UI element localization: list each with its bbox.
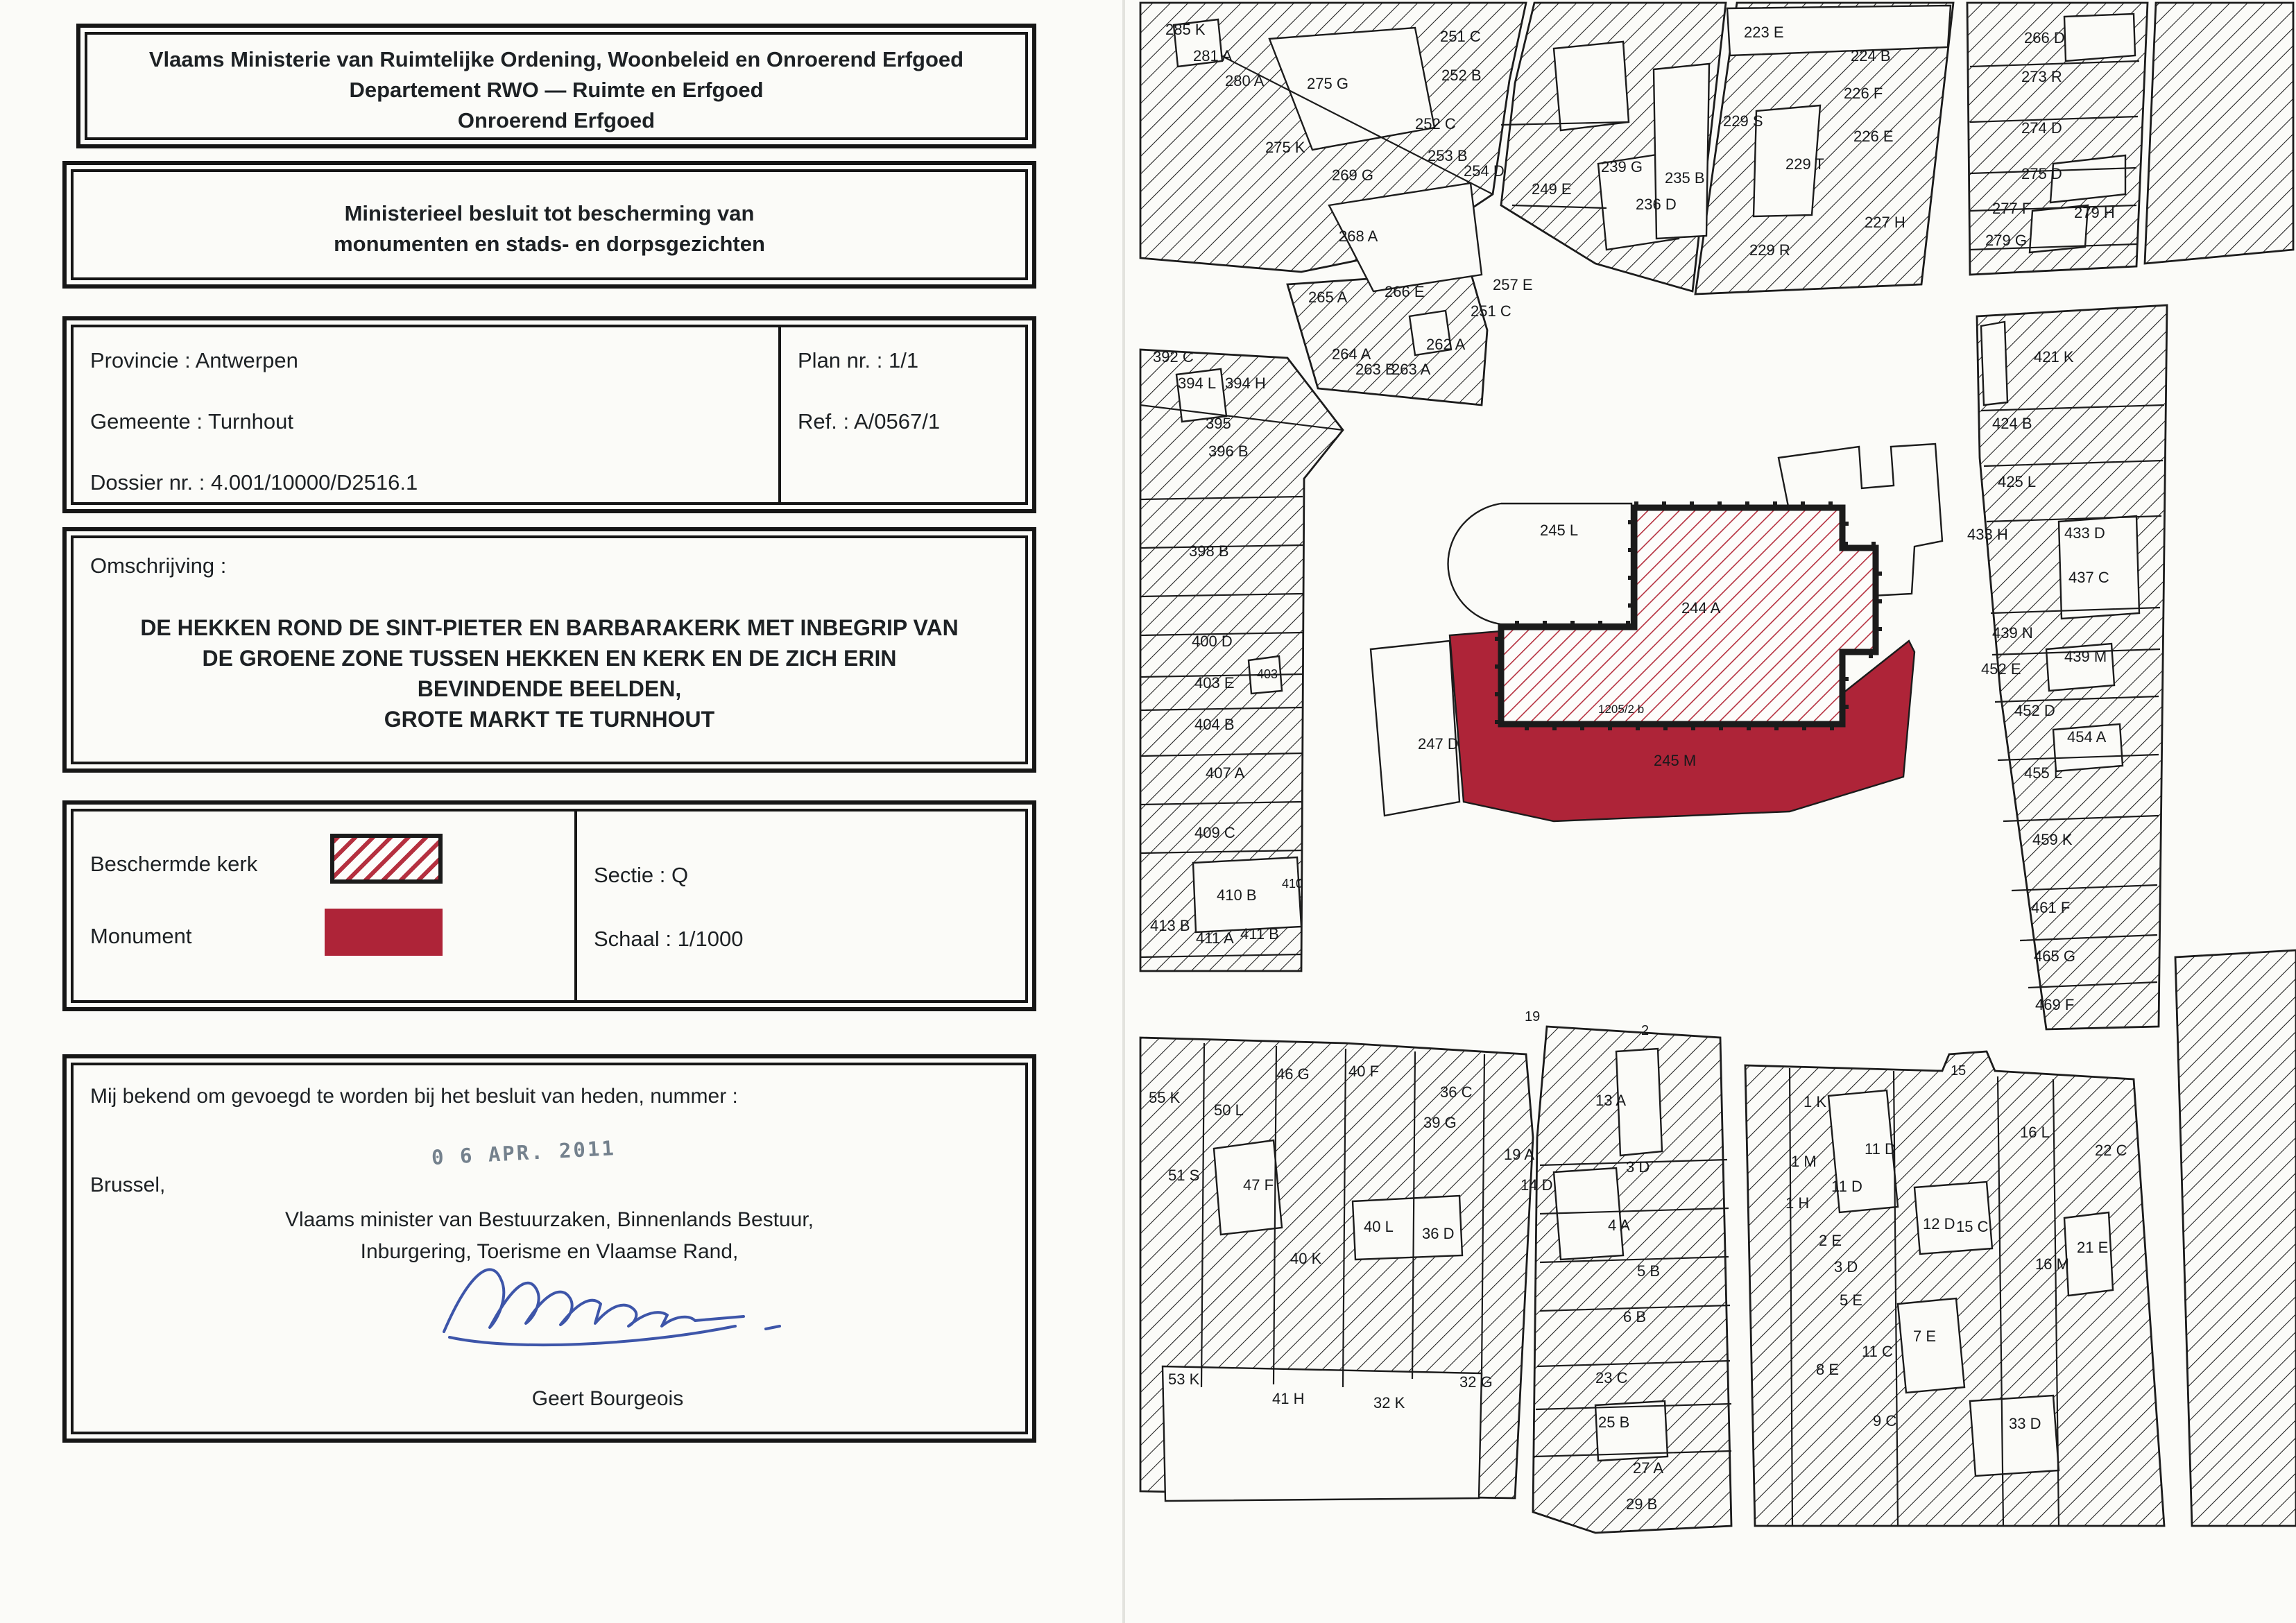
parcel-label: 46 G <box>1276 1065 1310 1083</box>
parcel-label: 247 D <box>1418 735 1459 753</box>
parcel-label: 252 B <box>1441 67 1482 84</box>
parcel-label: 229 R <box>1749 241 1790 259</box>
legend-box: Beschermde kerk Monument Sectie : Q Scha… <box>62 800 1036 1011</box>
parcel-label: 239 G <box>1601 158 1643 175</box>
parcel-label: 32 G <box>1459 1373 1493 1391</box>
parcel-label: 23 C <box>1595 1369 1628 1386</box>
parcel-label: 251 C <box>1440 28 1481 45</box>
parcel-label: 469 F <box>2035 996 2074 1013</box>
parcel-label: 33 D <box>2009 1415 2041 1432</box>
omschrijving-line1: DE HEKKEN ROND DE SINT-PIETER EN BARBARA… <box>74 615 1025 645</box>
parcel-label: 410 B <box>1217 886 1257 904</box>
closing-line: Mij bekend om gevoegd te worden bij het … <box>90 1085 738 1108</box>
parcel-label: 12 D <box>1923 1215 1955 1233</box>
info-divider <box>778 327 781 502</box>
parcel-label: 249 E <box>1532 180 1572 198</box>
parcel-label: 279 H <box>2074 204 2115 221</box>
plan-nr-field: Plan nr. : 1/1 <box>798 350 918 375</box>
parcel-label: 269 G <box>1332 166 1373 184</box>
dossier-field: Dossier nr. : 4.001/10000/D2516.1 <box>90 472 418 497</box>
parcel-label: 394 L <box>1178 375 1216 392</box>
parcel-247D <box>1371 641 1459 816</box>
parcel-label: 407 A <box>1206 764 1245 782</box>
parcel-label: 266 D <box>2024 29 2065 46</box>
legend-divider <box>574 811 577 1000</box>
parcel-label: 455 L <box>2024 764 2062 782</box>
closing-box: Mij bekend om gevoegd te worden bij het … <box>62 1054 1036 1443</box>
parcel-label: 409 C <box>1194 824 1235 841</box>
parcel-label: 454 A <box>2067 728 2107 746</box>
parcel-label: 439 N <box>1992 624 2033 642</box>
parcel-label: 433 D <box>2064 524 2105 542</box>
parcel-label: 275 K <box>1265 139 1305 156</box>
cadastral-map: 285 K281 A280 A275 G275 K269 G268 A265 A… <box>1138 0 2296 1623</box>
parcel-label: 3 D <box>1834 1258 1858 1276</box>
parcel-label: 452 E <box>1981 660 2021 678</box>
parcel-label: 6 B <box>1623 1308 1646 1325</box>
scanned-decree-page: Vlaams Ministerie van Ruimtelijke Ordeni… <box>0 0 2296 1623</box>
dossier-info-box: Provincie : Antwerpen Gemeente : Turnhou… <box>62 316 1036 513</box>
parcel-label: 266 E <box>1385 283 1425 300</box>
parcel-label: 425 L <box>1998 473 2036 490</box>
omschrijving-line2: DE GROENE ZONE TUSSEN HEKKEN EN KERK EN … <box>74 645 1025 676</box>
parcel-label: 265 A <box>1308 289 1348 306</box>
legend-label-kerk: Beschermde kerk <box>90 853 257 878</box>
parcel-label: 16 M <box>2035 1255 2069 1273</box>
parcel-label: 41 H <box>1272 1390 1304 1407</box>
parcel-label: 19 <box>1525 1009 1540 1024</box>
parcel-label: 14 D <box>1520 1176 1552 1194</box>
grote-markt-group <box>1371 504 1914 821</box>
parcel-label: 1 H <box>1785 1194 1809 1212</box>
parcel-label: 439 M <box>2064 648 2107 665</box>
legend-swatch-monument <box>325 909 443 956</box>
parcel-label: 245 L <box>1540 522 1578 539</box>
sectie-field: Sectie : Q <box>594 864 688 889</box>
parcel-label: 7 E <box>1913 1328 1936 1345</box>
parcel-label: 263 A <box>1391 361 1431 378</box>
parcel-label: 2 E <box>1819 1232 1842 1249</box>
parcel-label: 9 C <box>1873 1412 1896 1429</box>
agency-name: Onroerend Erfgoed <box>87 107 1025 137</box>
parcel-label: 11 C <box>1862 1343 1893 1360</box>
parcel-label: 275 G <box>1307 75 1348 92</box>
parcel-label: 281 A <box>1193 47 1233 65</box>
parcel-label: 16 L <box>2020 1124 2050 1141</box>
parcel-label: 394 H <box>1225 375 1266 392</box>
parcel-label: 53 K <box>1168 1371 1200 1388</box>
parcel-label: 257 E <box>1493 276 1533 293</box>
parcel-label: 3 D <box>1626 1158 1650 1176</box>
parcel-label: 452 D <box>2014 702 2055 719</box>
parcel-label: 235 B <box>1665 169 1705 187</box>
parcel-label: 27 A <box>1633 1459 1663 1477</box>
parcel-label: 465 G <box>2034 947 2075 965</box>
parcel-label: 396 B <box>1208 443 1249 460</box>
parcel-label: 40 K <box>1290 1250 1322 1267</box>
schaal-field: Schaal : 1/1000 <box>594 928 743 953</box>
parcel-label: 11 D <box>1865 1140 1896 1158</box>
parcel-label: 50 L <box>1214 1101 1244 1119</box>
legend-label-monument: Monument <box>90 925 191 950</box>
parcel-label: 226 F <box>1844 85 1883 102</box>
parcel-label: 421 K <box>2034 348 2074 366</box>
parcel-label: 274 D <box>2021 119 2062 137</box>
department-name: Departement RWO — Ruimte en Erfgoed <box>87 76 1025 107</box>
parcel-label: 411 B <box>1240 925 1279 943</box>
signer-name: Geert Bourgeois <box>420 1387 795 1411</box>
parcel-label: 40 F <box>1348 1063 1379 1080</box>
parcel-label: 11 D <box>1831 1178 1862 1195</box>
ministry-name: Vlaams Ministerie van Ruimtelijke Ordeni… <box>87 46 1025 76</box>
parcel-label: 424 B <box>1992 415 2032 432</box>
parcel-label: 229 S <box>1723 112 1763 130</box>
parcel-label: 275 D <box>2021 165 2062 182</box>
parcel-label: 32 K <box>1373 1394 1405 1411</box>
parcel-label: 1205/2 b <box>1598 703 1644 716</box>
parcel-label: 1 M <box>1791 1153 1817 1170</box>
omschrijving-line4: GROTE MARKT TE TURNHOUT <box>74 706 1025 737</box>
parcel-label: 229 T <box>1785 155 1824 173</box>
legend-swatch-beschermde-kerk <box>330 834 443 884</box>
parcel-label: 398 B <box>1189 542 1229 560</box>
parcel-label: 8 E <box>1816 1361 1839 1378</box>
parcel-label: 413 B <box>1150 917 1190 934</box>
parcel-label: 15 <box>1951 1063 1966 1079</box>
parcel-label: 403 <box>1257 667 1278 681</box>
minister-title-line1: Vlaams minister van Bestuurzaken, Binnen… <box>74 1204 1025 1236</box>
parcel-label: 1 K <box>1804 1093 1826 1110</box>
parcel-label: 47 F <box>1243 1176 1274 1194</box>
parcel-label: 285 K <box>1165 21 1206 38</box>
parcel-label: 437 C <box>2068 569 2109 586</box>
parcel-label: 19 A <box>1504 1146 1534 1163</box>
parcel-label: 236 D <box>1636 196 1677 213</box>
parcel-label: 5 E <box>1840 1291 1862 1309</box>
parcel-label: 252 C <box>1415 115 1456 132</box>
omschrijving-line3: BEVINDENDE BEELDEN, <box>74 676 1025 706</box>
parcel-label: 461 F <box>2031 899 2070 916</box>
decree-title-line2: monumenten en stads- en dorpsgezichten <box>74 230 1025 261</box>
parcel-label: 25 B <box>1598 1414 1629 1431</box>
omschrijving-label: Omschrijving : <box>90 555 226 580</box>
parcel-label: 13 A <box>1595 1092 1626 1109</box>
parcel-label: 411 A <box>1196 929 1234 947</box>
parcel-label: 223 E <box>1744 24 1784 41</box>
parcel-label: 55 K <box>1149 1089 1181 1106</box>
parcel-label: 253 B <box>1428 147 1468 164</box>
parcel-label: 21 E <box>2077 1239 2108 1256</box>
date-stamp: 0 6 APR. 2011 <box>431 1138 616 1170</box>
parcel-label: 226 E <box>1853 128 1894 145</box>
parcel-label: 268 A <box>1339 227 1378 245</box>
parcel-label: 262 A <box>1426 336 1466 353</box>
province-field: Provincie : Antwerpen <box>90 350 298 375</box>
parcel-label: 36 C <box>1440 1083 1473 1101</box>
signature <box>427 1243 788 1368</box>
parcel-label: 15 C <box>1956 1218 1989 1235</box>
parcel-label: 254 D <box>1464 162 1505 180</box>
parcel-label: 29 B <box>1626 1495 1657 1513</box>
parcel-label: 410 <box>1282 877 1303 891</box>
ministry-header-box: Vlaams Ministerie van Ruimtelijke Ordeni… <box>76 24 1036 148</box>
parcel-label: 4 A <box>1608 1217 1630 1234</box>
parcel-label: 404 B <box>1194 716 1235 733</box>
place-label: Brussel, <box>90 1174 165 1197</box>
parcel-label: 263 B <box>1355 361 1396 378</box>
parcel-label: 459 K <box>2032 831 2073 848</box>
parcel-label: 224 B <box>1851 47 1891 65</box>
parcel-label: 279 G <box>1985 232 2027 249</box>
parcel-label: 251 C <box>1471 302 1511 320</box>
decree-title-box: Ministerieel besluit tot bescherming van… <box>62 161 1036 289</box>
parcel-label: 245 M <box>1654 752 1696 769</box>
parcel-label: 36 D <box>1422 1225 1454 1242</box>
parcel-label: 403 E <box>1194 674 1235 692</box>
parcel-label: 244 A <box>1681 599 1721 617</box>
parcel-label: 273 R <box>2021 68 2062 85</box>
page-fold-line <box>1122 0 1125 1623</box>
parcel-label: 277 F <box>1992 200 2031 217</box>
omschrijving-box: Omschrijving : DE HEKKEN ROND DE SINT-PI… <box>62 527 1036 773</box>
parcel-label: 51 S <box>1168 1167 1199 1184</box>
parcel-label: 280 A <box>1225 72 1265 89</box>
parcel-label: 227 H <box>1865 214 1905 231</box>
gemeente-field: Gemeente : Turnhout <box>90 411 293 436</box>
ref-field: Ref. : A/0567/1 <box>798 411 940 436</box>
parcel-label: 39 G <box>1423 1114 1457 1131</box>
parcel-label: 5 B <box>1637 1262 1660 1280</box>
parcel-label: 433 H <box>1967 526 2008 543</box>
parcel-label: 22 C <box>2095 1142 2127 1159</box>
parcel-label: 395 <box>1206 415 1231 432</box>
decree-title-line1: Ministerieel besluit tot bescherming van <box>74 200 1025 230</box>
parcel-label: 392 C <box>1153 348 1194 366</box>
parcel-label: 400 D <box>1192 633 1233 650</box>
parcel-label: 40 L <box>1364 1218 1394 1235</box>
parcel-label: 2 <box>1641 1023 1649 1038</box>
